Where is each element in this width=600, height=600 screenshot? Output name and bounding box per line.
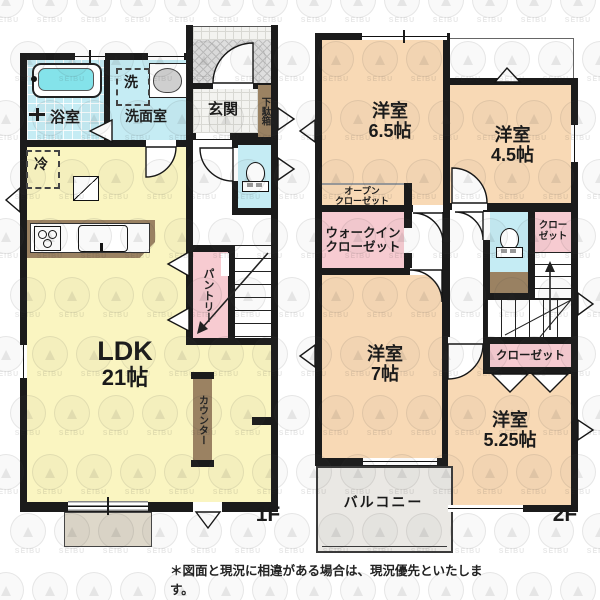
counter-label: カウンター bbox=[194, 382, 210, 458]
floor1-label: 1F bbox=[246, 503, 290, 527]
f2-toilet-door-gap bbox=[483, 212, 490, 240]
f2-stairs-lower bbox=[487, 300, 571, 337]
room7-balcony-window bbox=[363, 458, 437, 465]
floor2-label: 2F bbox=[543, 503, 587, 527]
f2-wall-stub bbox=[404, 183, 412, 212]
room525-door-gap bbox=[448, 337, 483, 344]
shoe-cabinet-label: 下駄箱 bbox=[257, 87, 272, 136]
room525-bottom-window bbox=[448, 505, 523, 512]
f2-toilet-floor bbox=[490, 272, 528, 293]
fridge-label: 冷 bbox=[28, 155, 54, 175]
open-closet-label: オープン クローゼット bbox=[324, 185, 400, 207]
f2-corridor bbox=[450, 210, 483, 337]
room65-label: 洋室 6.5帖 bbox=[340, 92, 440, 150]
room65-door-gap bbox=[413, 205, 443, 212]
room65-top-window-tick bbox=[403, 30, 405, 43]
closet-wide-label: クローゼット bbox=[490, 346, 571, 366]
room45-door-gap bbox=[452, 203, 487, 210]
entrance-label: 玄関 bbox=[194, 99, 252, 121]
closet-small-label: クロー ゼット bbox=[535, 214, 571, 250]
walk-in-closet-label: ウォークイン クローゼット bbox=[322, 216, 404, 264]
room45-right-window bbox=[571, 125, 578, 162]
pantry-label: パントリー bbox=[200, 256, 216, 334]
f2-toilet-icon bbox=[496, 228, 522, 262]
f1-toilet-icon bbox=[242, 162, 268, 196]
bathroom-label: 浴室 bbox=[30, 107, 100, 129]
ldk-name: LDK bbox=[97, 336, 153, 366]
washer-label: 洗 bbox=[118, 73, 144, 93]
f2-roof-outline bbox=[447, 38, 574, 82]
floor-2-plan bbox=[0, 0, 600, 600]
washroom-label: 洗面室 bbox=[106, 106, 186, 128]
floor-plan-page: 浴室 洗面室 洗 玄関 下駄箱 冷 LDK 21帖 パントリー カウンター 1F… bbox=[0, 0, 600, 600]
f2-stairs-upper bbox=[535, 252, 571, 298]
balcony-railing-line bbox=[322, 546, 447, 547]
room7-door-gap bbox=[410, 268, 442, 275]
wic-door-gap bbox=[404, 228, 412, 253]
disclaimer-text: ＊図面と現況に相違がある場合は、現況優先といたします。 bbox=[170, 560, 490, 598]
room525-label: 洋室 5.25帖 bbox=[450, 402, 570, 458]
ldk-label: LDK 21帖 bbox=[60, 332, 190, 394]
f2-hall-pocket bbox=[412, 212, 442, 268]
room7-label: 洋室 7帖 bbox=[335, 336, 435, 392]
ldk-size: 21帖 bbox=[102, 366, 148, 391]
balcony-label: バルコニー bbox=[322, 492, 445, 514]
room45-label: 洋室 4.5帖 bbox=[460, 116, 565, 174]
